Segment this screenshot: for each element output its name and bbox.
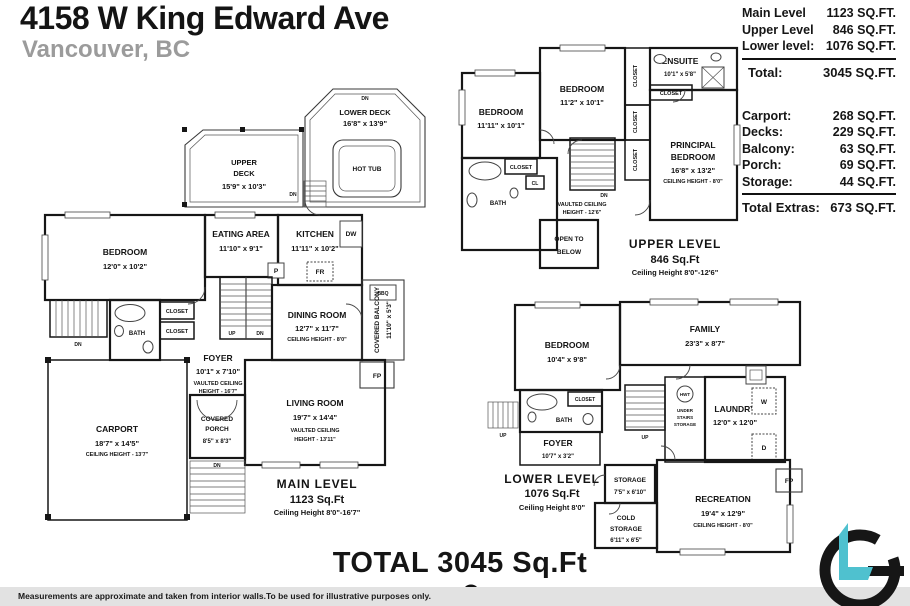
laundry-dims: 12'0" x 12'0" (713, 418, 757, 427)
covered-balcony: BBQ COVERED BALCONY 11'10" x 5'3" (362, 280, 404, 360)
lower-level-floorplan: BEDROOM 10'4" x 9'8" FAMILY 23'3" x 8'7"… (480, 290, 825, 575)
main-level-ceiling: Ceiling Height 8'0"-16'7" (274, 508, 361, 517)
closet-label: CLOSET (633, 110, 639, 133)
utility-closet: HWT UNDER STAIRS STORAGE (665, 377, 705, 462)
deck-dn-label: DN (361, 96, 369, 102)
summary-label: Main Level (742, 5, 806, 22)
summary-total-extras-row: Total Extras: 673 SQ.FT. (742, 199, 896, 217)
family-dims: 23'3" x 8'7" (685, 339, 725, 348)
living-room: LIVING ROOM 19'7" x 14'4" VAULTED CEILIN… (245, 360, 385, 465)
sink (467, 193, 477, 207)
recreation-room: RECREATION 19'4" x 12'9" CEILING HEIGHT … (657, 460, 802, 552)
upper-deck-name1: UPPER (231, 158, 257, 167)
living-height: HEIGHT - 13'11" (294, 437, 336, 443)
extras-row-storage: Storage: 44 SQ.FT. (742, 174, 896, 191)
lower-foyer: FOYER 10'7" x 3'2" (520, 432, 600, 465)
extras-label: Balcony: (742, 141, 795, 158)
entry-stairs-up: UP (500, 433, 508, 439)
cold-storage-name2: STORAGE (610, 526, 643, 533)
closet-label: CLOSET (166, 309, 189, 315)
ensuite-name: ENSUITE (662, 56, 699, 66)
eating-dims: 11'10" x 9'1" (219, 244, 263, 253)
lower-deck-name: LOWER DECK (339, 108, 391, 117)
principal-bedroom: PRINCIPAL BEDROOM 16'8" x 13'2" CEILING … (650, 90, 737, 220)
extras-label: Carport: (742, 108, 791, 125)
open-below-1: OPEN TO (554, 236, 583, 243)
page-subtitle: Vancouver, BC (22, 36, 190, 64)
storage-name: STORAGE (614, 477, 647, 484)
dw-label: DW (346, 231, 358, 238)
bath-label: BATH (129, 331, 145, 337)
total-extras-value: 673 SQ.FT. (830, 199, 896, 217)
upper-bathroom: CLOSET CL BATH (462, 158, 557, 250)
summary-label: Lower level: (742, 38, 814, 55)
main-level-title: MAIN LEVEL (277, 477, 358, 491)
summary-row-lower: Lower level: 1076 SQ.FT. (742, 38, 896, 55)
under-stairs-3: STORAGE (674, 422, 696, 427)
lower-deck-dims: 16'8" x 13'9" (343, 119, 387, 128)
laundry-sink (746, 366, 766, 384)
foyer-dims: 10'1" x 7'10" (196, 367, 240, 376)
closet-label: CLOSET (633, 64, 639, 87)
extras-row-carport: Carport: 268 SQ.FT. (742, 108, 896, 125)
carport-name: CARPORT (96, 424, 139, 434)
family-name: FAMILY (690, 324, 721, 334)
closet-label: CLOSET (510, 165, 533, 171)
total-extras-label: Total Extras: (742, 199, 820, 217)
toilet (115, 326, 124, 337)
stairs-up: UP (229, 331, 237, 337)
summary-row-upper: Upper Level 846 SQ.FT. (742, 22, 896, 39)
upper-stairs-dn: DN (600, 193, 608, 199)
principal-dims: 16'8" x 13'2" (671, 166, 715, 175)
extras-value: 268 SQ.FT. (833, 108, 896, 125)
lower-mid-stairs: UP (625, 385, 665, 441)
main-left-stairs: DN (50, 300, 107, 348)
open-to-below: OPEN TO BELOW (540, 220, 598, 268)
laundry-name: LAUNDRY (714, 404, 756, 414)
closet-label: CLOSET (166, 329, 189, 335)
balcony-name: COVERED BALCONY (374, 286, 381, 353)
principal-name2: BEDROOM (671, 152, 715, 162)
extras-row-balcony: Balcony: 63 SQ.FT. (742, 141, 896, 158)
main-closets: CLOSET CLOSET (160, 302, 194, 339)
under-stairs-2: STAIRS (677, 415, 693, 420)
sink (654, 55, 666, 64)
storage-dims: 7'5" x 6'10" (614, 490, 646, 496)
living-vaulted: VAULTED CEILING (291, 428, 340, 434)
dining-ceiling: CEILING HEIGHT - 8'0" (287, 337, 347, 343)
ensuite: ENSUITE 10'1" x 5'8" (650, 48, 737, 90)
carport-dims: 18'7" x 14'5" (95, 439, 139, 448)
upper-stairs: DN VAULTED CEILING HEIGHT - 12'6" (558, 138, 616, 216)
sink (143, 341, 153, 353)
bedroom2-name: BEDROOM (560, 84, 604, 94)
principal-ceiling: CEILING HEIGHT - 8'0" (663, 179, 723, 185)
extras-value: 44 SQ.FT. (840, 174, 896, 191)
upper-level-title: UPPER LEVEL (629, 237, 721, 251)
toilet (528, 412, 536, 422)
bedroom-dims: 12'0" x 10'2" (103, 262, 147, 271)
lower-bathroom: BATH CLOSET (520, 390, 602, 432)
cold-storage-dims: 6'11" x 6'5" (610, 538, 642, 544)
main-level-sqft: 1123 Sq.Ft (290, 494, 345, 506)
bedroom1-name: BEDROOM (479, 107, 523, 117)
upper-level-ceiling: Ceiling Height 8'0"-12'6" (632, 268, 719, 277)
bedroom-dims: 10'4" x 9'8" (547, 355, 587, 364)
bathtub (527, 394, 557, 410)
upper-deck: UPPER DECK 15'9" x 10'3" DN (182, 127, 326, 207)
closet-label: CLOSET (633, 148, 639, 171)
vaulted-2: HEIGHT - 12'6" (563, 210, 602, 216)
bathtub (115, 305, 145, 322)
summary-divider (742, 193, 896, 195)
extras-row-decks: Decks: 229 SQ.FT. (742, 124, 896, 141)
carport-ceiling: CEILING HEIGHT - 13'7" (86, 452, 149, 458)
main-level-floorplan: DN LOWER DECK 16'8" x 13'9" HOT TUB UPPE… (20, 75, 430, 525)
covered-porch: COVERED PORCH 8'5" x 8'3" DN (190, 395, 245, 513)
bedroom-name: BEDROOM (545, 340, 589, 350)
disclaimer-text: Measurements are approximate and taken f… (0, 587, 910, 606)
main-level-label: MAIN LEVEL 1123 Sq.Ft Ceiling Height 8'0… (274, 477, 361, 517)
lower-entry-stairs: UP (488, 402, 518, 439)
sink (583, 414, 593, 425)
upper-bedroom2: BEDROOM 11'2" x 10'1" (540, 48, 625, 140)
extras-value: 229 SQ.FT. (833, 124, 896, 141)
lower-bedroom: BEDROOM 10'4" x 9'8" (515, 305, 620, 390)
extras-value: 69 SQ.FT. (840, 157, 896, 174)
fp-label: FP (373, 373, 382, 380)
foyer-vaulted: VAULTED CEILING (194, 381, 243, 387)
cl-label: CL (532, 181, 539, 187)
porch-dims: 8'5" x 8'3" (203, 439, 232, 445)
bath-label: BATH (490, 201, 506, 207)
extras-label: Storage: (742, 174, 793, 191)
bedroom1-dims: 11'11" x 10'1" (477, 121, 525, 130)
closet-label: CLOSET (660, 91, 683, 97)
summary-value: 1076 SQ.FT. (826, 38, 896, 55)
sqft-summary: Main Level 1123 SQ.FT. Upper Level 846 S… (742, 5, 896, 217)
upper-bedroom1: BEDROOM 11'11" x 10'1" (462, 73, 540, 158)
lg-logo (812, 500, 910, 606)
foyer-name: FOYER (203, 353, 232, 363)
under-stairs-1: UNDER (677, 408, 694, 413)
bedroom2-dims: 11'2" x 10'1" (560, 98, 604, 107)
upper-level-sqft: 846 Sq.Ft (651, 254, 700, 266)
toilet (510, 188, 518, 198)
main-bedroom: BEDROOM 12'0" x 10'2" (45, 215, 205, 300)
hwt-label: HWT (680, 392, 690, 397)
upper-level-floorplan: BEDROOM 11'11" x 10'1" BEDROOM 11'2" x 1… (450, 35, 745, 295)
kitchen-dims: 11'11" x 10'2" (291, 244, 339, 253)
hot-tub-label: HOT TUB (353, 166, 382, 173)
principal-name1: PRINCIPAL (670, 140, 715, 150)
kitchen-name: KITCHEN (296, 229, 334, 239)
extras-row-porch: Porch: 69 SQ.FT. (742, 157, 896, 174)
logo-g-bar (868, 566, 904, 576)
recreation-dims: 19'4" x 12'9" (701, 509, 745, 518)
mid-stairs-up: UP (642, 435, 650, 441)
summary-value: 1123 SQ.FT. (827, 5, 896, 22)
living-name: LIVING ROOM (286, 398, 343, 408)
washer-label: W (761, 399, 768, 406)
dining-name: DINING ROOM (288, 310, 347, 320)
eating-area: EATING AREA 11'10" x 9'1" (205, 215, 278, 277)
fr-label: FR (316, 269, 325, 276)
upper-deck-dims: 15'9" x 10'3" (222, 182, 266, 191)
deck-stairs (304, 181, 326, 207)
dining-room: DINING ROOM 12'7" x 11'7" CEILING HEIGHT… (272, 285, 362, 360)
foyer-dims: 10'7" x 3'2" (542, 454, 574, 460)
upper-doors (540, 90, 685, 215)
bathtub (469, 162, 501, 180)
lower-level-label: LOWER LEVEL 1076 Sq.Ft Ceiling Height 8'… (504, 472, 599, 512)
foyer-name: FOYER (543, 438, 572, 448)
eating-name: EATING AREA (212, 229, 270, 239)
deck-stairs-dn: DN (289, 192, 297, 198)
upper-level-label: UPPER LEVEL 846 Sq.Ft Ceiling Height 8'0… (629, 237, 721, 277)
cold-storage-name1: COLD (617, 515, 636, 522)
total-sqft: TOTAL 3045 Sq.Ft (20, 547, 900, 580)
bath-label: BATH (556, 418, 572, 424)
p-label: P (274, 268, 279, 275)
lower-deck: DN LOWER DECK 16'8" x 13'9" HOT TUB (305, 89, 425, 207)
fp-label: FP (785, 478, 794, 485)
kitchen: KITCHEN 11'11" x 10'2" DW FR P (268, 215, 362, 285)
family-room: FAMILY 23'3" x 8'7" (620, 302, 800, 365)
total-label: Total: (742, 64, 782, 82)
main-fireplace: FP (360, 362, 394, 388)
laundry-room: LAUNDRY 12'0" x 12'0" W D (705, 366, 785, 462)
living-dims: 19'7" x 14'4" (293, 413, 337, 422)
closet-label: CLOSET (575, 397, 595, 403)
open-below-2: BELOW (557, 249, 582, 256)
main-foyer: FOYER 10'1" x 7'10" VAULTED CEILING HEIG… (194, 353, 243, 395)
summary-label: Upper Level (742, 22, 814, 39)
dining-dims: 12'7" x 11'7" (295, 324, 339, 333)
cold-storage-room: COLD STORAGE 6'11" x 6'5" (595, 503, 657, 548)
lower-level-sqft: 1076 Sq.Ft (524, 488, 579, 500)
porch-dn: DN (213, 463, 221, 469)
page-title: 4158 W King Edward Ave (20, 0, 389, 37)
summary-value: 846 SQ.FT. (833, 22, 896, 39)
recreation-ceiling: CEILING HEIGHT - 8'0" (693, 523, 753, 529)
left-stairs-dn: DN (74, 342, 82, 348)
main-bathroom: BATH (110, 300, 160, 360)
porch-name2: PORCH (205, 426, 229, 433)
upper-deck-name2: DECK (233, 169, 255, 178)
extras-label: Decks: (742, 124, 783, 141)
summary-row-main: Main Level 1123 SQ.FT. (742, 5, 896, 22)
recreation-name: RECREATION (695, 494, 751, 504)
vaulted-1: VAULTED CEILING (558, 202, 607, 208)
lower-level-title: LOWER LEVEL (504, 472, 599, 486)
main-stairs: UP DN (220, 277, 272, 339)
summary-total-row: Total: 3045 SQ.FT. (742, 64, 896, 82)
storage-room: STORAGE 7'5" x 6'10" (605, 465, 655, 503)
lower-level-ceiling: Ceiling Height 8'0" (519, 503, 586, 512)
disclaimer-bar: Measurements are approximate and taken f… (0, 587, 910, 606)
bedroom-name: BEDROOM (103, 247, 147, 257)
total-value: 3045 SQ.FT. (823, 64, 896, 82)
toilet (711, 53, 721, 61)
stairs-dn: DN (256, 331, 264, 337)
summary-divider (742, 58, 896, 60)
ensuite-dims: 10'1" x 5'8" (664, 72, 696, 78)
dryer-label: D (762, 445, 767, 452)
carport: CARPORT 18'7" x 14'5" CEILING HEIGHT - 1… (45, 357, 190, 520)
extras-label: Porch: (742, 157, 782, 174)
balcony-dims: 11'10" x 5'3" (386, 301, 393, 339)
extras-value: 63 SQ.FT. (840, 141, 896, 158)
